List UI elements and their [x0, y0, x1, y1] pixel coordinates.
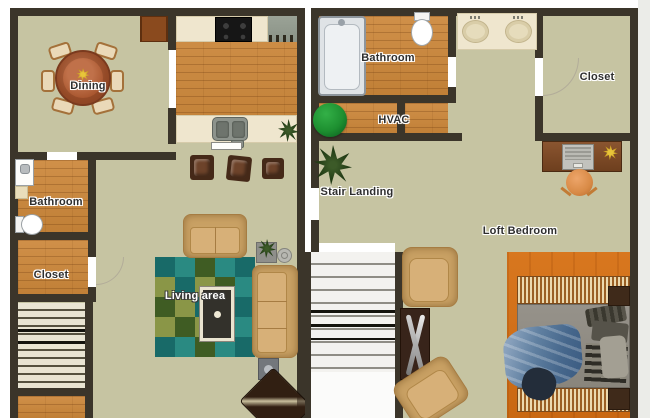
cushion-divider	[257, 301, 287, 302]
floor-cushion	[190, 155, 214, 180]
wall	[311, 95, 456, 103]
faucet-icon	[513, 16, 524, 19]
door-opening	[169, 50, 176, 108]
cushion-divider	[215, 227, 216, 254]
sofa	[252, 265, 298, 358]
sofa-cushion	[257, 272, 287, 353]
door-opening	[47, 152, 77, 160]
room-label-loft-bedroom: Loft Bedroom	[483, 225, 558, 237]
door-opening	[448, 57, 456, 87]
floor-cushion	[226, 155, 252, 182]
toilet-icon	[21, 214, 43, 235]
door-opening	[311, 188, 319, 220]
stair-tread-line	[311, 338, 395, 340]
stair-tread-line	[18, 341, 85, 344]
stair-landing-platform	[311, 372, 395, 418]
planter-box	[256, 242, 277, 263]
room-label-dining: Dining	[70, 80, 105, 92]
bathroom-vanity	[15, 159, 34, 186]
vanity-sink	[20, 164, 30, 174]
wall	[305, 252, 311, 418]
vanity-sink	[505, 20, 532, 43]
wall	[10, 232, 96, 240]
laptop-icon	[562, 144, 594, 170]
wall	[535, 133, 638, 141]
chair-cushion	[409, 258, 449, 302]
loveseat	[183, 214, 247, 258]
vanity-cabinet	[15, 186, 28, 199]
table-decor	[214, 311, 221, 318]
sink-basin	[216, 121, 229, 138]
wall	[85, 302, 93, 418]
nightstand	[608, 388, 630, 410]
wall	[18, 388, 93, 396]
stove-icon	[215, 17, 252, 42]
room-label-stair-landing: Stair Landing	[321, 186, 394, 198]
tub-basin	[324, 24, 360, 90]
stair-tread-line	[18, 329, 85, 332]
armchair	[402, 247, 458, 307]
wall	[88, 160, 96, 240]
door-opening	[535, 58, 543, 96]
wall	[10, 294, 96, 302]
cushion-divider	[257, 328, 287, 329]
floor-cushion	[262, 158, 284, 179]
hvac-floor2	[405, 103, 448, 135]
wall	[10, 152, 176, 160]
tub-faucet	[338, 19, 345, 26]
stair-tread-line	[311, 324, 395, 327]
room-label-closet-main: Closet	[34, 269, 69, 281]
vanity-sink	[462, 20, 489, 43]
laptop-screen	[565, 147, 591, 160]
laptop-trackpad	[573, 163, 583, 168]
staircase-lower	[18, 303, 85, 388]
double-vanity	[457, 13, 537, 50]
stair-tread-line	[311, 310, 395, 313]
wall	[297, 8, 305, 418]
kitchen-sink	[212, 117, 248, 141]
faucet-icon	[470, 16, 481, 19]
dining-chair	[110, 70, 124, 92]
staircase-upper	[311, 252, 395, 372]
door-opening	[88, 257, 96, 287]
ring	[281, 252, 288, 259]
dining-chair	[41, 70, 55, 92]
room-label-bathroom-upper: Bathroom	[361, 52, 415, 64]
entry-floor	[18, 396, 88, 418]
wall	[630, 8, 638, 418]
plant-icon	[258, 239, 276, 258]
sink-basin	[232, 121, 245, 138]
room-label-hvac: HVAC	[378, 114, 409, 126]
bathtub	[318, 16, 366, 96]
wall	[10, 8, 305, 16]
counter-items	[269, 35, 295, 42]
wall	[10, 8, 18, 418]
toilet-icon	[411, 19, 433, 46]
kitchen-cabinet	[140, 16, 168, 42]
outside-margin	[638, 0, 650, 418]
side-table-round	[277, 248, 292, 263]
room-label-closet-upper: Closet	[580, 71, 615, 83]
desk	[542, 141, 622, 172]
dishwasher	[211, 142, 242, 150]
wall	[168, 108, 176, 144]
room-label-bathroom-main: Bathroom	[29, 196, 83, 208]
desk-flower	[603, 145, 618, 160]
wall	[168, 16, 176, 50]
bed-sheet	[599, 335, 629, 379]
stair-edge	[319, 243, 395, 252]
floor-plan: Dining Bathroom Closet Living area	[0, 0, 650, 418]
room-label-living-area: Living area	[165, 290, 225, 302]
nightstand	[608, 286, 630, 306]
hvac-unit	[313, 103, 347, 137]
